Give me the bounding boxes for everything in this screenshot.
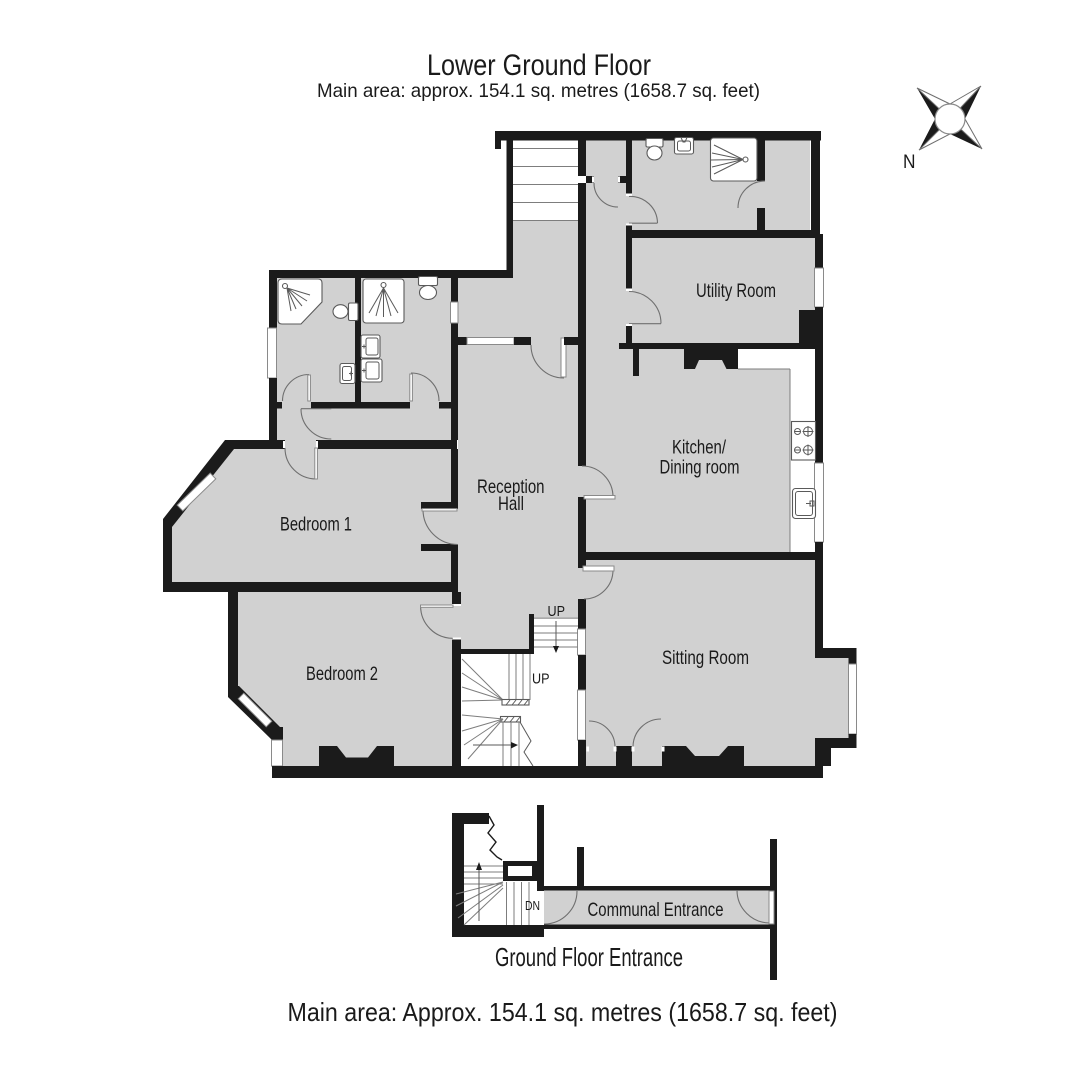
- svg-text:Hall: Hall: [498, 493, 524, 515]
- svg-text:Communal Entrance: Communal Entrance: [588, 899, 724, 921]
- svg-text:Bedroom 2: Bedroom 2: [306, 663, 378, 685]
- svg-text:N: N: [903, 152, 916, 173]
- svg-text:Utility Room: Utility Room: [696, 280, 776, 302]
- svg-text:UP: UP: [532, 672, 550, 688]
- svg-text:UP: UP: [548, 604, 566, 620]
- svg-text:Main area: approx. 154.1 sq. m: Main area: approx. 154.1 sq. metres (165…: [317, 80, 760, 102]
- svg-text:Sitting Room: Sitting Room: [662, 647, 749, 669]
- svg-text:Dining room: Dining room: [660, 457, 740, 479]
- svg-text:Kitchen/: Kitchen/: [672, 437, 726, 459]
- svg-text:DN: DN: [525, 898, 540, 913]
- svg-text:Lower Ground Floor: Lower Ground Floor: [427, 49, 651, 82]
- svg-text:Bedroom 1: Bedroom 1: [280, 514, 352, 536]
- svg-text:Main area: Approx. 154.1 sq. m: Main area: Approx. 154.1 sq. metres (165…: [288, 997, 838, 1027]
- svg-text:Ground Floor Entrance: Ground Floor Entrance: [495, 942, 683, 972]
